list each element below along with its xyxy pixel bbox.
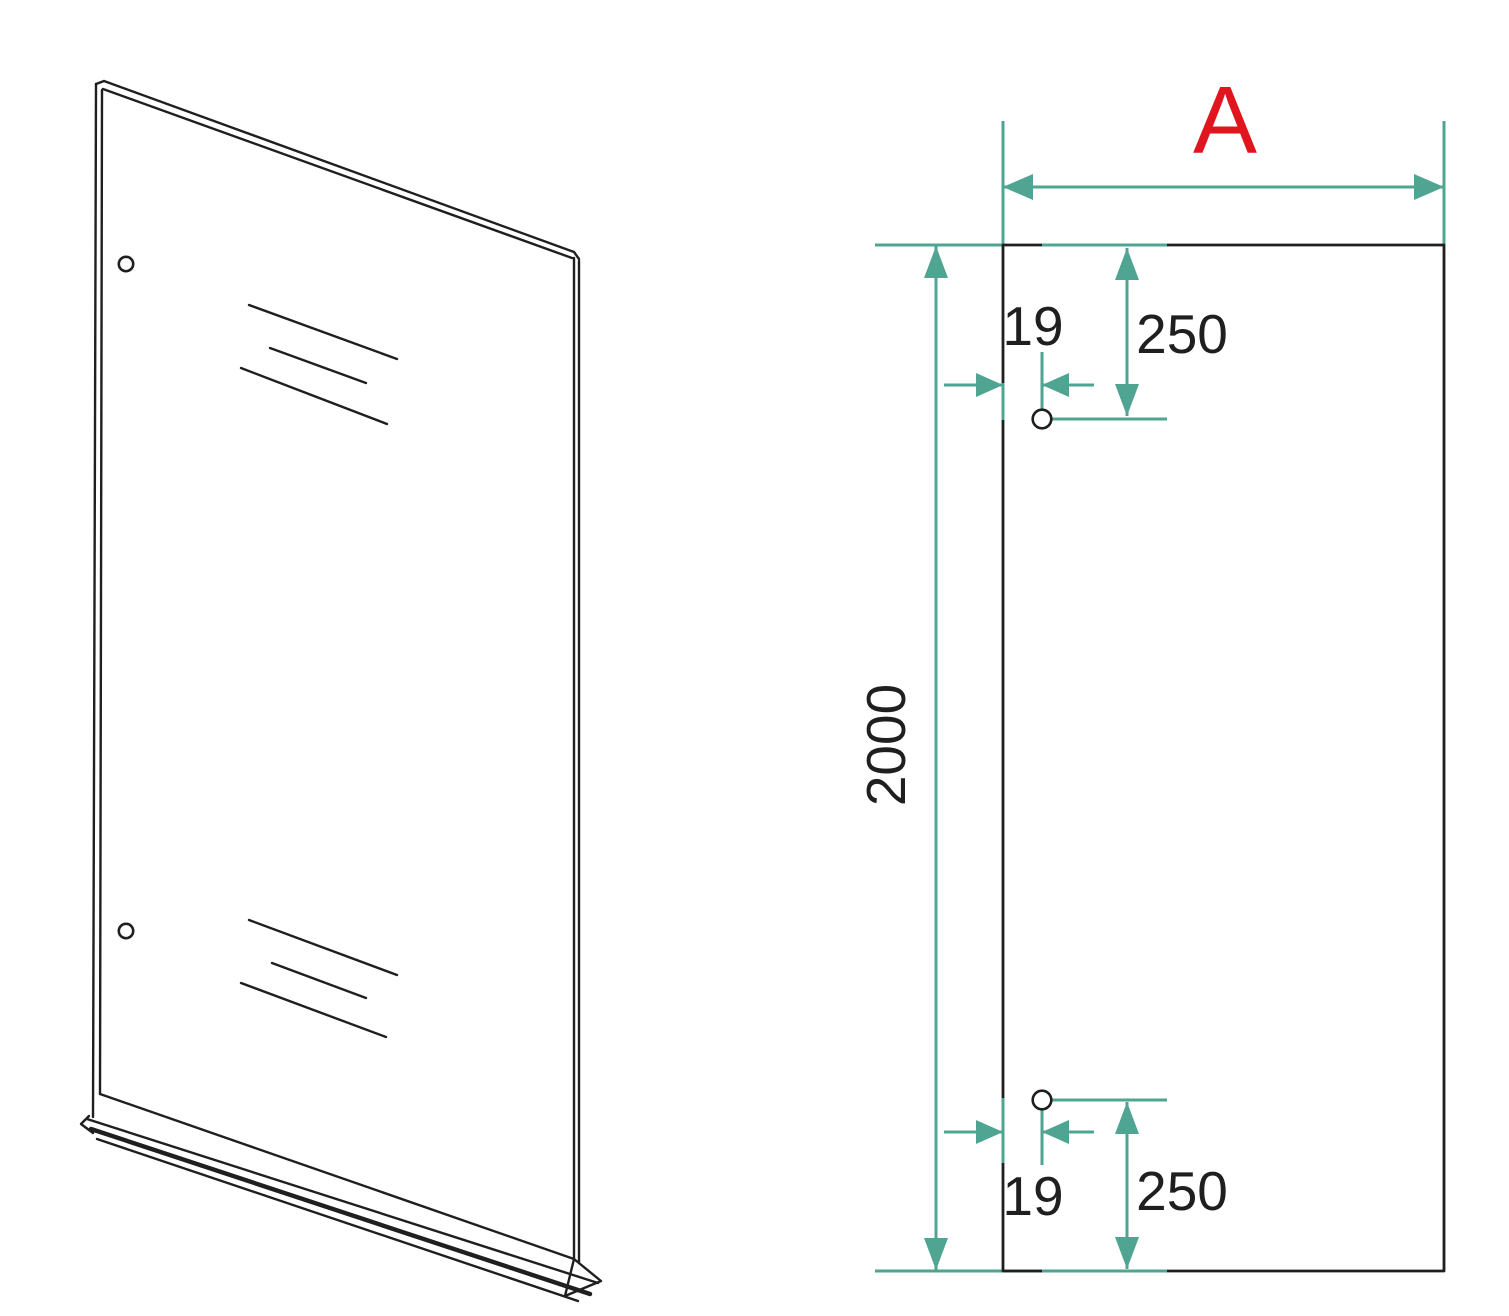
glass-reflection-lower (241, 920, 397, 1037)
dim-bottom-250-label: 250 (1136, 1160, 1228, 1222)
dim-top-19-arrow-left (1042, 373, 1069, 397)
mounting-hole-top-iso (119, 257, 133, 271)
dim-top-250-arrow-down (1115, 384, 1139, 416)
mounting-hole-bottom-iso (119, 924, 133, 938)
dim-top-19-arrow-right (976, 373, 1003, 397)
dim-width-label: A (1193, 67, 1257, 174)
dim-top-250-label: 250 (1136, 303, 1228, 365)
elevation-view: A 2000 250 19 (855, 67, 1444, 1271)
dim-top-hole-250: 250 (1042, 245, 1228, 419)
mounting-hole-top-elevation (1033, 410, 1052, 429)
bottom-rail-left-foot (81, 1116, 93, 1133)
panel-bottom-edge (100, 1094, 574, 1259)
dim-height-2000: 2000 (855, 245, 1167, 1271)
dim-top-19-label: 19 (1002, 295, 1063, 357)
dim-bottom-250-arrow-down (1115, 1237, 1139, 1269)
dim-width-a: A (1003, 67, 1444, 245)
panel-right-edge (574, 258, 579, 1262)
dim-width-arrow-left (1003, 174, 1033, 200)
dim-width-arrow-right (1414, 174, 1444, 200)
dim-bottom-19-label: 19 (1002, 1165, 1063, 1227)
bottom-rail-groove (91, 1129, 590, 1294)
dim-bottom-250-arrow-up (1115, 1102, 1139, 1134)
glass-reflection-upper (241, 305, 397, 424)
dim-top-250-arrow-up (1115, 248, 1139, 280)
panel-left-edge (93, 84, 102, 1117)
dim-top-19-stubs (1003, 352, 1042, 420)
mounting-hole-bottom-elevation (1033, 1091, 1052, 1110)
panel-outline-elevation (1003, 245, 1444, 1271)
dim-bottom-hole-19: 19 (944, 1098, 1094, 1227)
drawing-canvas: A 2000 250 19 (0, 0, 1509, 1316)
dim-height-label: 2000 (855, 684, 917, 806)
dim-bottom-hole-250: 250 (1042, 1100, 1228, 1271)
dim-height-arrow-up (924, 246, 948, 278)
dim-bottom-19-arrow-right (976, 1120, 1003, 1144)
isometric-view (81, 81, 601, 1301)
bottom-rail-bottom-edge (97, 1139, 578, 1301)
dim-bottom-19-arrow-left (1042, 1120, 1069, 1144)
dim-height-arrow-down (924, 1238, 948, 1270)
bottom-rail-top-edge (87, 1119, 598, 1283)
technical-drawing-page: A 2000 250 19 (0, 0, 1509, 1316)
panel-top-edge (96, 81, 579, 259)
dim-top-hole-19: 19 (944, 295, 1094, 420)
